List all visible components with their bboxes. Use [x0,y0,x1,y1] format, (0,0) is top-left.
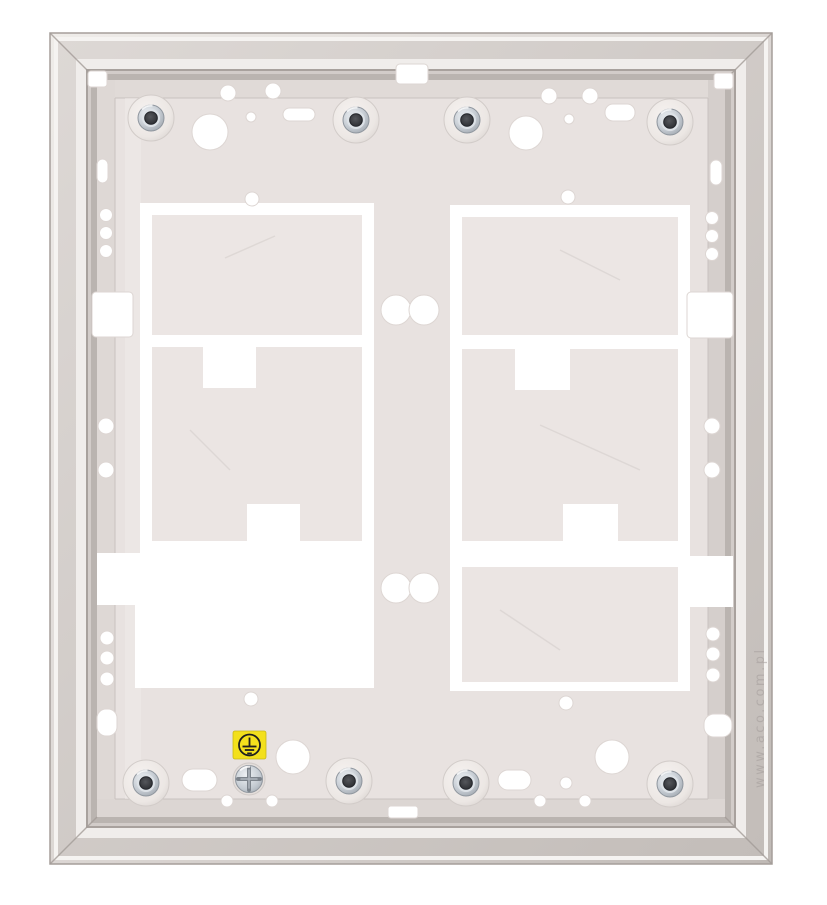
standoff-nut [647,761,693,807]
hole [706,627,720,641]
knockout-plate-top-right [462,217,678,335]
mounting-hole [192,114,228,150]
standoff-nut [123,760,169,806]
knockout-plate-bottom-right [462,567,678,682]
side-tab-cutout [92,292,133,337]
cable-hole [381,295,411,325]
watermark-text: www.aco.com.pl [753,647,768,788]
clip-notch [396,64,428,84]
panel-left-wall [97,80,115,817]
hole [564,114,574,124]
mounting-hole [276,740,310,774]
hole [582,88,598,104]
slot [710,160,722,185]
hole [541,88,557,104]
cable-hole [381,573,411,603]
side-tab-cutout [687,292,733,338]
cable-hole [409,573,439,603]
hole [534,795,546,807]
mounting-hole [509,116,543,150]
hole [100,209,113,222]
hole [706,248,719,261]
photo-canvas: www.aco.com.pl [0,0,827,905]
hole [100,631,114,645]
hole [246,112,256,122]
hole [559,696,573,710]
hole [704,418,720,434]
knockout-plate-top-left [152,215,362,335]
hole [100,672,114,686]
panel-highlight-band [125,98,141,799]
standoff-nut [128,95,174,141]
hole [706,230,719,243]
knockout-notch-cutout [203,345,256,388]
hole [245,192,259,206]
hole [706,647,720,661]
slot [97,159,108,183]
hole [265,83,281,99]
slot [605,104,635,121]
hole [579,795,591,807]
earth-screw [233,763,265,795]
standoff-nut [444,97,490,143]
standoff-nut [333,97,379,143]
hole [560,777,572,789]
hole [220,85,236,101]
product-photo-flush-mount-back-box: www.aco.com.pl [0,0,827,905]
hole [266,795,278,807]
side-tab-cutout [683,556,733,607]
hole [706,668,720,682]
hole [100,651,114,665]
slot [182,769,217,791]
clip-notch [714,73,733,89]
knockout-notch-cutout [247,504,300,553]
slot [498,770,531,790]
clip-notch [88,71,107,87]
hole [561,190,575,204]
hole [244,692,258,706]
hole [704,462,720,478]
cable-hole [409,295,439,325]
hole [221,795,233,807]
slot [283,108,315,121]
hole [100,245,113,258]
standoff-nut [647,99,693,145]
hole [706,212,719,225]
slot [704,714,732,737]
hole [98,418,114,434]
standoff-nut [443,760,489,806]
slot [97,709,117,736]
hole [98,462,114,478]
knockout-notch-cutout [515,347,570,390]
clip-notch [388,806,418,818]
knockout-notch-cutout [563,504,618,553]
module-opening-bottom-left [97,553,374,688]
panel-right-wall [708,80,725,817]
standoff-nut [326,758,372,804]
mounting-hole [595,740,629,774]
hole [100,227,113,240]
